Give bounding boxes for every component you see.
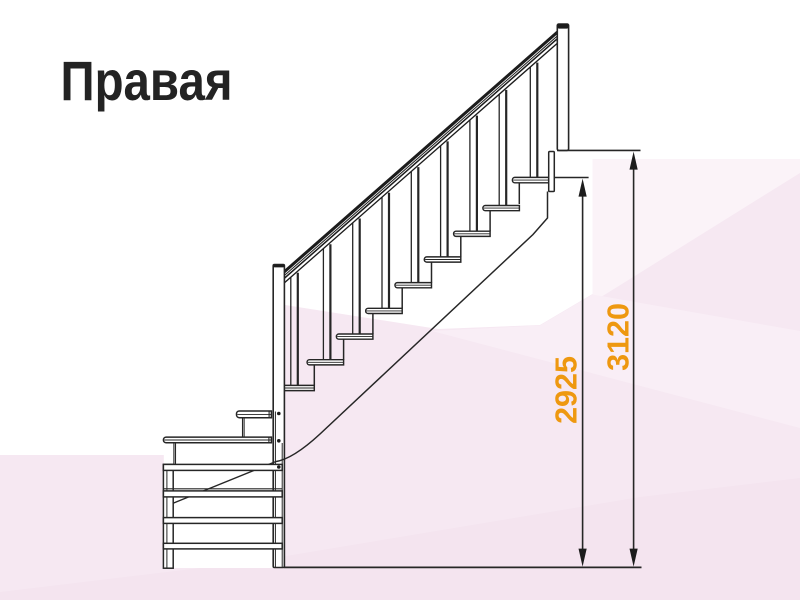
svg-text:2925: 2925 [549,356,583,424]
svg-text:Правая: Правая [61,49,233,112]
svg-text:3120: 3120 [602,303,636,371]
